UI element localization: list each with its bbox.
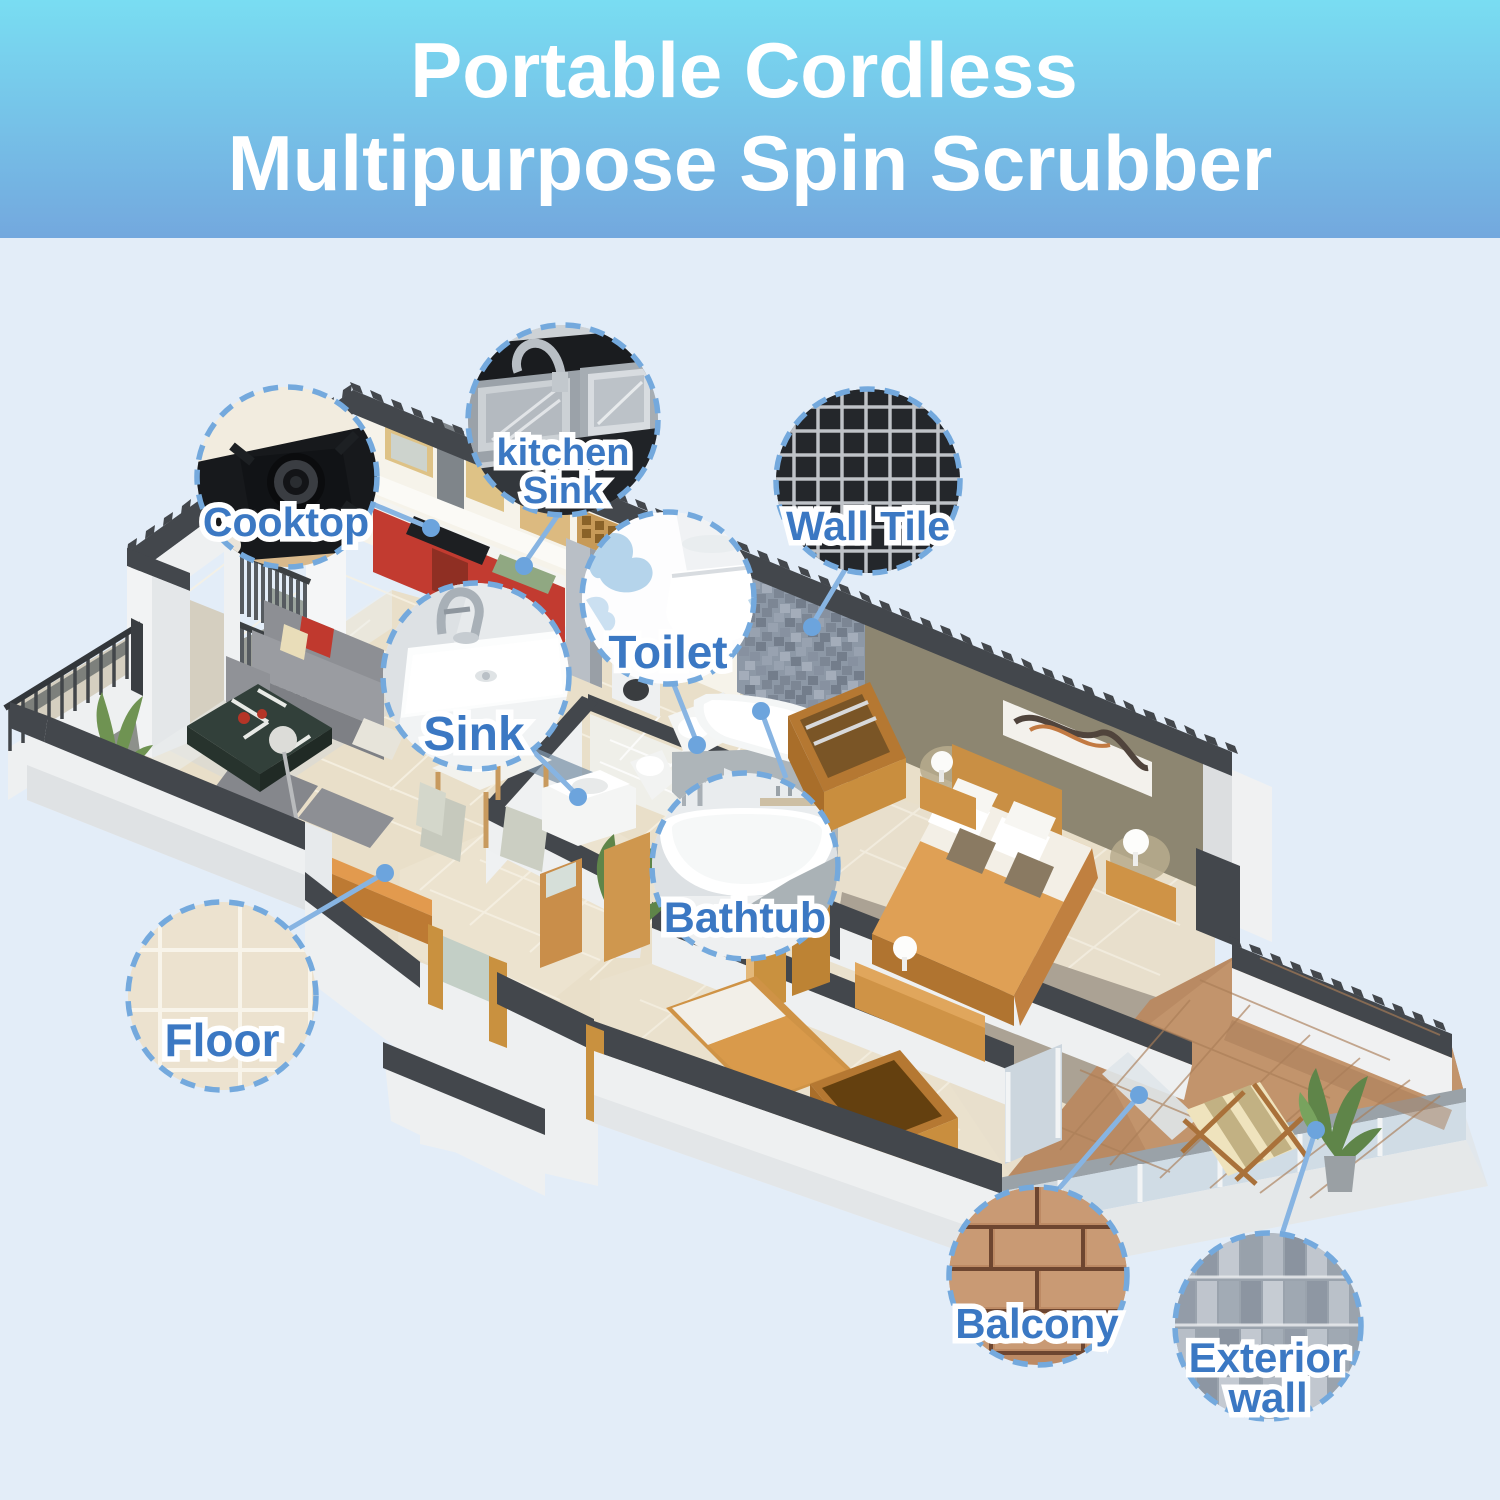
svg-text:wall: wall bbox=[1227, 1374, 1307, 1421]
svg-text:Sink: Sink bbox=[423, 708, 525, 761]
svg-text:Cooktop: Cooktop bbox=[203, 499, 369, 545]
svg-text:Balcony: Balcony bbox=[955, 1300, 1119, 1347]
svg-text:Wall Tile: Wall Tile bbox=[786, 503, 950, 549]
svg-text:Toilet: Toilet bbox=[608, 626, 727, 678]
svg-text:Sink: Sink bbox=[523, 470, 604, 512]
svg-text:Multipurpose Spin Scrubber: Multipurpose Spin Scrubber bbox=[228, 119, 1272, 207]
svg-text:Floor: Floor bbox=[165, 1014, 280, 1066]
svg-text:kitchen: kitchen bbox=[496, 432, 629, 474]
svg-text:Bathtub: Bathtub bbox=[664, 894, 826, 942]
svg-text:Portable Cordless: Portable Cordless bbox=[410, 26, 1078, 114]
